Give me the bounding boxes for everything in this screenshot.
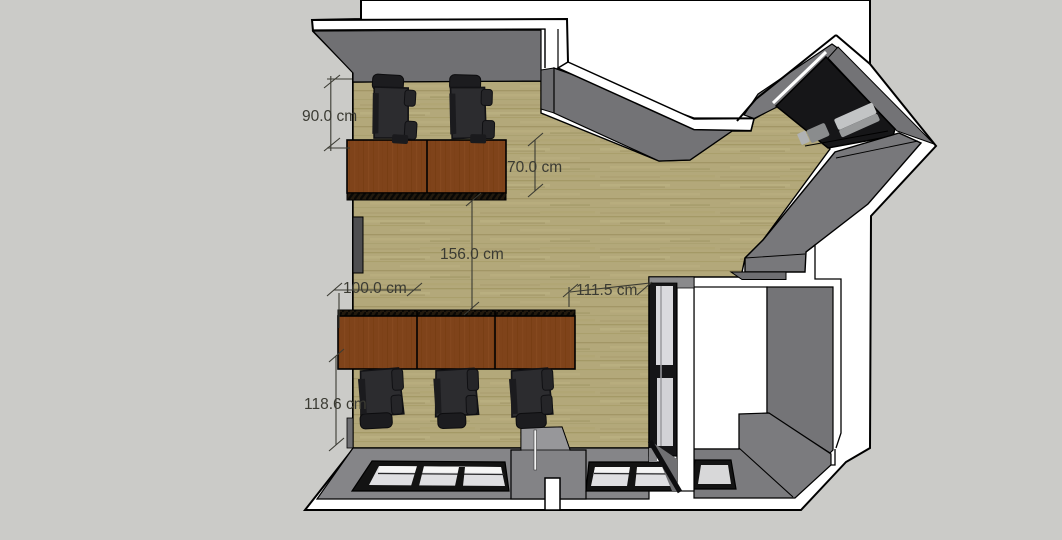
svg-text:118.6 cm: 118.6 cm: [304, 396, 367, 413]
svg-text:90.0 cm: 90.0 cm: [302, 108, 357, 125]
svg-text:156.0 cm: 156.0 cm: [440, 246, 504, 263]
svg-text:111.5 cm: 111.5 cm: [576, 282, 637, 299]
svg-text:70.0 cm: 70.0 cm: [507, 159, 562, 176]
svg-text:100.0 cm: 100.0 cm: [343, 280, 407, 297]
